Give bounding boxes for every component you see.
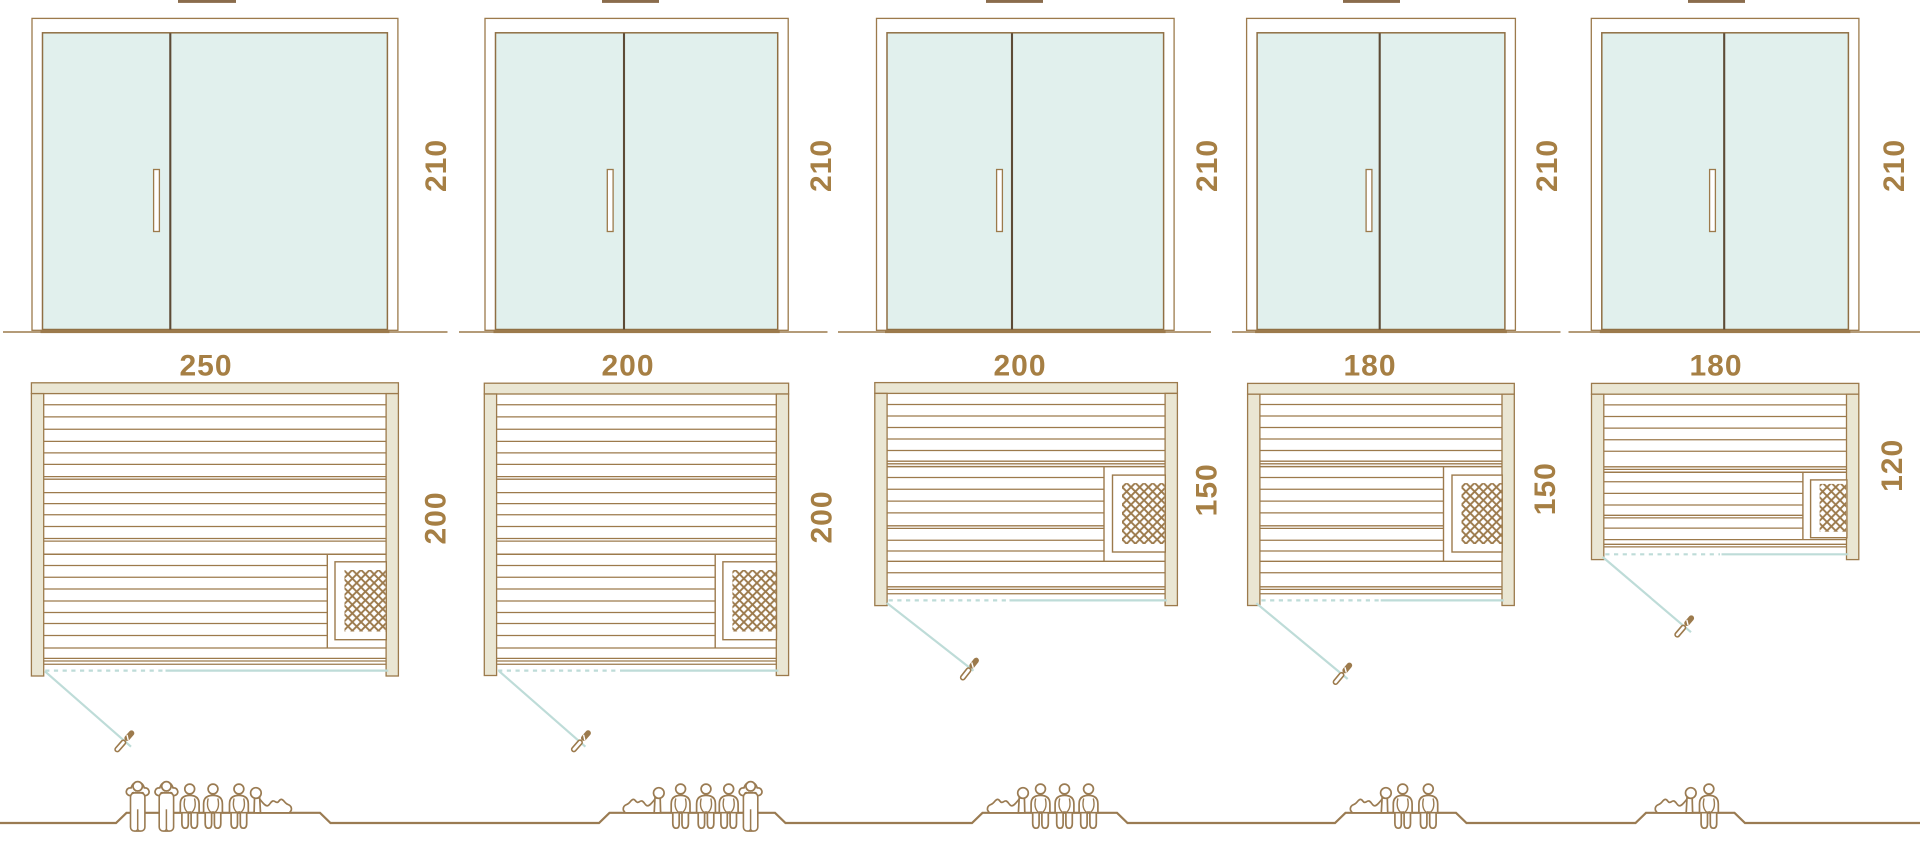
svg-text:210: 210 [805, 139, 838, 192]
svg-text:210: 210 [1531, 139, 1564, 192]
svg-text:200: 200 [601, 350, 654, 383]
svg-text:200: 200 [420, 491, 453, 544]
svg-text:200: 200 [805, 490, 838, 543]
svg-text:210: 210 [1878, 139, 1911, 192]
svg-text:180: 180 [1343, 350, 1396, 383]
svg-text:150: 150 [1529, 462, 1562, 515]
svg-text:120: 120 [1876, 439, 1909, 492]
svg-text:210: 210 [1191, 139, 1224, 192]
svg-text:150: 150 [1190, 463, 1223, 516]
svg-text:210: 210 [420, 139, 453, 192]
svg-text:250: 250 [179, 350, 232, 383]
svg-text:180: 180 [1689, 350, 1742, 383]
svg-text:200: 200 [993, 350, 1046, 383]
